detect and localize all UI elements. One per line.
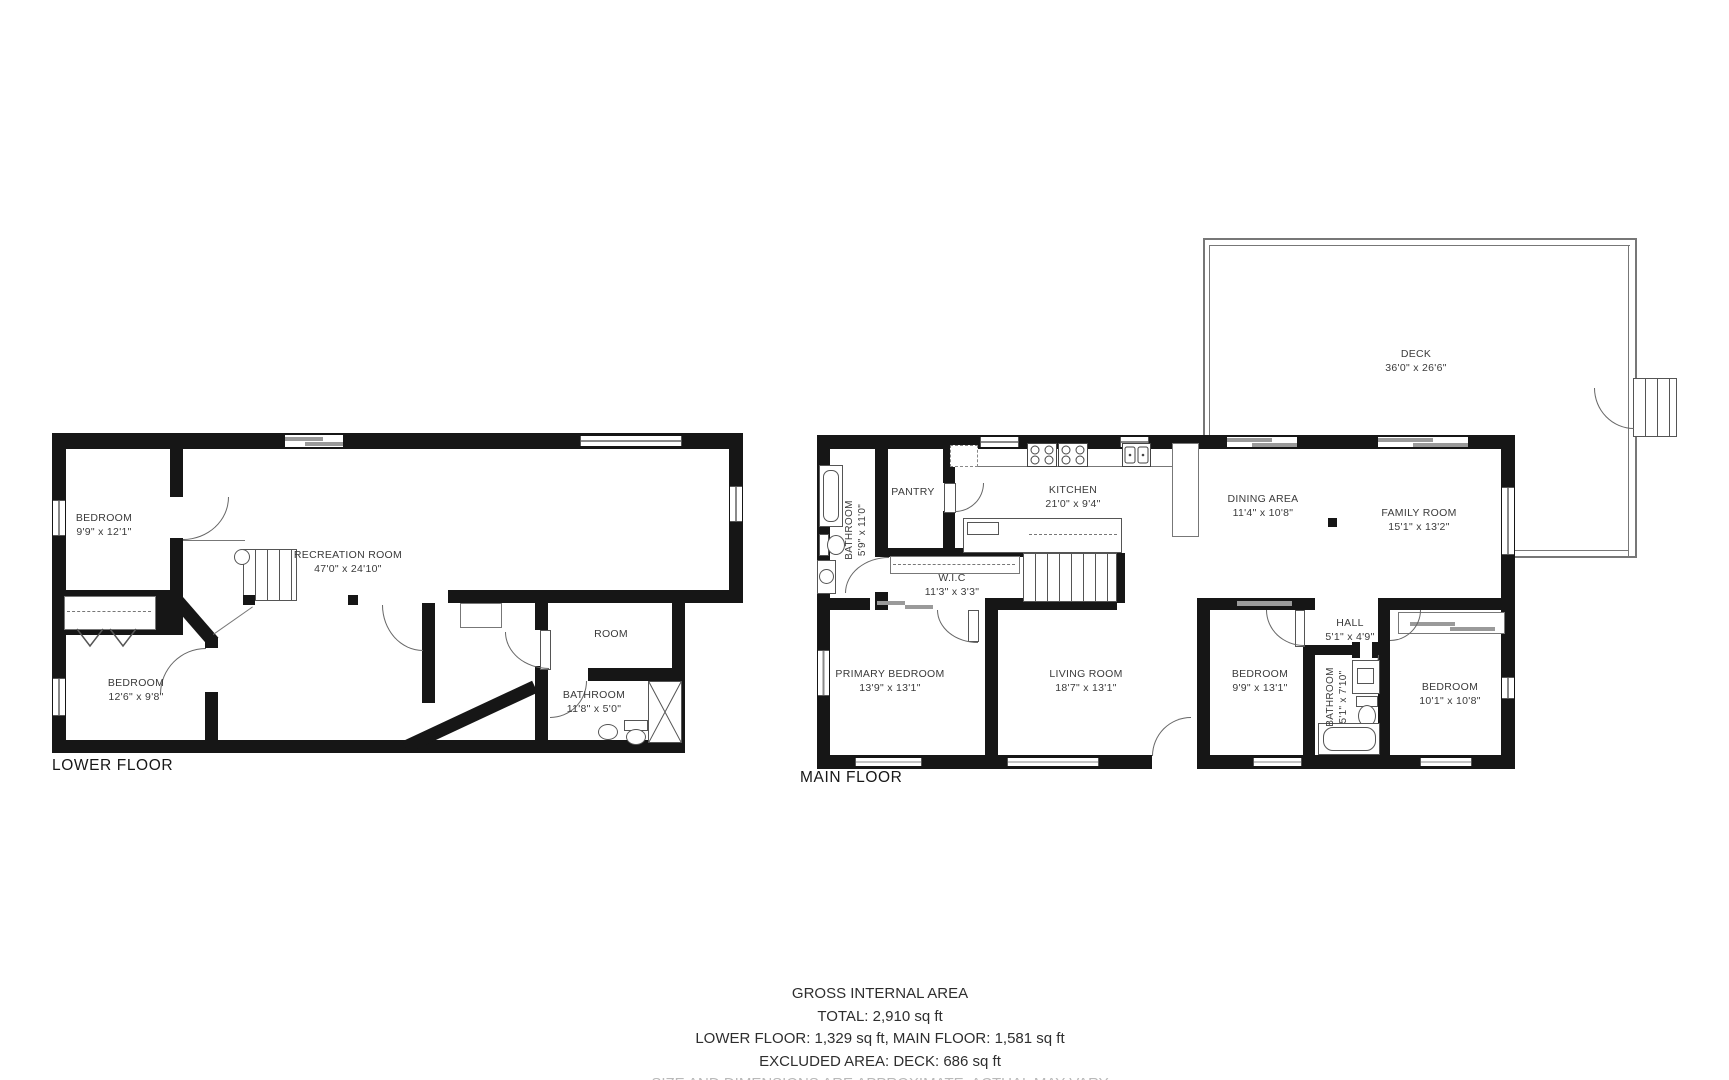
room-dims: 36'0" x 26'6"	[1385, 361, 1447, 375]
window	[53, 500, 65, 536]
room-name: BEDROOM	[1419, 680, 1481, 694]
wall	[205, 638, 218, 648]
room-label-room: ROOM	[594, 627, 628, 641]
floor-title-lower: LOWER FLOOR	[52, 757, 173, 775]
room-dims: 5'9" x 11'0"	[856, 500, 869, 559]
stairs-icon	[243, 549, 297, 601]
room-label-kitchen: KITCHEN 21'0" x 9'4"	[1045, 483, 1100, 511]
pocket-door-icon	[1237, 601, 1292, 606]
room-label-wic: W.I.C 11'3" x 3'3"	[925, 571, 980, 599]
room-name: BATHROOM	[563, 688, 625, 702]
wall	[1197, 598, 1210, 769]
room-name: HALL	[1325, 616, 1374, 630]
room-dims: 5'1" x 4'9"	[1325, 630, 1374, 644]
counter	[460, 603, 502, 628]
window	[1253, 758, 1302, 766]
window	[1502, 487, 1514, 555]
room-name: LIVING ROOM	[1049, 667, 1122, 681]
room-name: RECREATION ROOM	[294, 548, 402, 562]
room-name: BATHROOM	[843, 500, 856, 559]
door-arc	[1594, 388, 1634, 429]
wall	[1303, 645, 1315, 769]
door-arc	[160, 648, 206, 694]
room-dims: 11'8" x 5'0"	[563, 702, 625, 716]
room-dims: 5'1" x 7'10"	[1337, 667, 1350, 726]
room-label-bedroom: BEDROOM 10'1" x 10'8"	[1419, 680, 1481, 708]
room-label-pantry: PANTRY	[891, 485, 934, 499]
room-label-recreation: RECREATION ROOM 47'0" x 24'10"	[294, 548, 402, 576]
room-label-bedroom: BEDROOM 9'9" x 13'1"	[1232, 667, 1288, 695]
room-label-dining: DINING AREA 11'4" x 10'8"	[1228, 492, 1299, 520]
door-arc	[1266, 610, 1304, 646]
floor-title-main: MAIN FLOOR	[800, 769, 902, 787]
sink-icon	[819, 569, 834, 584]
wall	[170, 433, 183, 497]
window	[1420, 758, 1472, 766]
door-arc	[1152, 717, 1191, 756]
room-name: ROOM	[594, 627, 628, 641]
area-summary: GROSS INTERNAL AREA TOTAL: 2,910 sq ft L…	[540, 983, 1220, 1080]
post	[243, 595, 255, 605]
summary-total: TOTAL: 2,910 sq ft	[540, 1006, 1220, 1029]
wall	[875, 435, 888, 557]
sliding-door-icon	[1450, 627, 1495, 631]
stair-newel-icon	[234, 549, 250, 565]
room-dims: 9'9" x 13'1"	[1232, 681, 1288, 695]
door-arc	[1390, 610, 1421, 641]
room-label-deck: DECK 36'0" x 26'6"	[1385, 347, 1447, 375]
deck-edge	[1209, 245, 1630, 246]
door-arc	[955, 483, 984, 512]
toilet-icon	[626, 729, 646, 745]
window	[855, 758, 922, 766]
floorplan-canvas: DECK 36'0" x 26'6"	[0, 0, 1729, 1080]
room-name: BEDROOM	[108, 676, 164, 690]
room-label-bedroom: BEDROOM 9'9" x 12'1"	[76, 511, 132, 539]
room-label-living: LIVING ROOM 18'7" x 13'1"	[1049, 667, 1122, 695]
bathtub-icon	[1318, 723, 1380, 755]
shower-icon	[648, 681, 682, 743]
room-dims: 21'0" x 9'4"	[1045, 497, 1100, 511]
sliding-door-icon	[1227, 438, 1272, 442]
opening	[1152, 755, 1197, 769]
wall	[205, 692, 218, 753]
summary-disclaimer: SIZE AND DIMENSIONS ARE APPROXIMATE, ACT…	[540, 1073, 1220, 1080]
deck-stairs-icon	[1633, 378, 1677, 437]
deck-edge	[1635, 238, 1637, 380]
door-arc	[937, 610, 978, 643]
sliding-door-icon	[1252, 443, 1297, 447]
room-dims: 10'1" x 10'8"	[1419, 694, 1481, 708]
sliding-door-icon	[1413, 443, 1468, 447]
door-arc	[505, 632, 549, 669]
sliding-door-icon	[1378, 438, 1433, 442]
stair-line	[213, 606, 253, 634]
wall	[817, 598, 870, 610]
pocket-door-icon	[905, 605, 933, 609]
room-name: W.I.C	[925, 571, 980, 585]
room-name: KITCHEN	[1045, 483, 1100, 497]
post	[1328, 518, 1337, 527]
clothes-hanger-icon	[72, 628, 142, 648]
room-dims: 9'9" x 12'1"	[76, 525, 132, 539]
room-dims: 11'4" x 10'8"	[1228, 506, 1299, 520]
room-name: PANTRY	[891, 485, 934, 499]
kitchen-sink-icon	[1122, 443, 1151, 467]
sliding-door-icon	[285, 437, 323, 441]
room-label-bathroom: BATHROOM 5'9" x 11'0"	[843, 500, 869, 559]
room-label-bedroom: BEDROOM 12'6" x 9'8"	[108, 676, 164, 704]
room-label-bathroom: BATHROOM 5'1" x 7'10"	[1324, 667, 1350, 726]
deck-edge	[1515, 550, 1628, 551]
summary-excluded: EXCLUDED AREA: DECK: 686 sq ft	[540, 1051, 1220, 1074]
room-dims: 47'0" x 24'10"	[294, 562, 402, 576]
window	[1502, 677, 1514, 699]
summary-heading: GROSS INTERNAL AREA	[540, 983, 1220, 1006]
kitchen-island-icon	[963, 518, 1122, 553]
wall	[1303, 598, 1315, 610]
sink-icon	[598, 724, 618, 740]
room-name: BEDROOM	[76, 511, 132, 525]
room-dims: 13'9" x 13'1"	[835, 681, 944, 695]
deck-edge	[1515, 556, 1637, 558]
room-name: DECK	[1385, 347, 1447, 361]
post	[348, 595, 358, 605]
wall	[943, 511, 955, 548]
room-label-family: FAMILY ROOM 15'1" x 13'2"	[1381, 506, 1456, 534]
window	[53, 678, 65, 716]
cabinet-icon	[950, 445, 978, 467]
wall	[1390, 598, 1515, 610]
wall	[170, 538, 183, 590]
closet-icon	[64, 596, 156, 630]
vanity-icon	[1352, 660, 1380, 694]
refrigerator-icon	[1172, 443, 1199, 537]
window	[818, 650, 829, 696]
room-name: DINING AREA	[1228, 492, 1299, 506]
room-label-hall: HALL 5'1" x 4'9"	[1325, 616, 1374, 644]
window	[580, 436, 682, 446]
room-name: BATHROOM	[1324, 667, 1337, 726]
pocket-door-icon	[877, 601, 905, 605]
window	[1007, 758, 1099, 766]
deck-edge	[1203, 238, 1637, 240]
room-dims: 11'3" x 3'3"	[925, 585, 980, 599]
room-label-bathroom: BATHROOM 11'8" x 5'0"	[563, 688, 625, 716]
room-dims: 18'7" x 13'1"	[1049, 681, 1122, 695]
room-name: BEDROOM	[1232, 667, 1288, 681]
deck-edge	[1635, 433, 1637, 558]
stove-icon	[1027, 443, 1089, 467]
stairs-icon	[1023, 553, 1117, 602]
summary-floors: LOWER FLOOR: 1,329 sq ft, MAIN FLOOR: 1,…	[540, 1028, 1220, 1051]
window	[980, 437, 1019, 447]
stair-line	[183, 540, 245, 541]
door-arc	[382, 605, 423, 651]
deck-edge	[1209, 245, 1210, 437]
window	[730, 486, 742, 522]
wall	[422, 603, 435, 703]
room-name: FAMILY ROOM	[1381, 506, 1456, 520]
wall	[1315, 645, 1355, 655]
bathtub-icon	[819, 465, 843, 527]
sliding-door-icon	[305, 442, 343, 446]
room-name: PRIMARY BEDROOM	[835, 667, 944, 681]
wall	[985, 598, 998, 769]
door-arc	[183, 497, 229, 540]
room-dims: 15'1" x 13'2"	[1381, 520, 1456, 534]
deck-edge	[1203, 238, 1205, 438]
wall	[588, 668, 685, 681]
wall	[535, 666, 548, 753]
room-label-primary-bedroom: PRIMARY BEDROOM 13'9" x 13'1"	[835, 667, 944, 695]
wall	[52, 740, 685, 753]
room-dims: 12'6" x 9'8"	[108, 690, 164, 704]
wall	[535, 590, 548, 630]
door-arc	[845, 557, 889, 593]
wall	[448, 590, 743, 603]
